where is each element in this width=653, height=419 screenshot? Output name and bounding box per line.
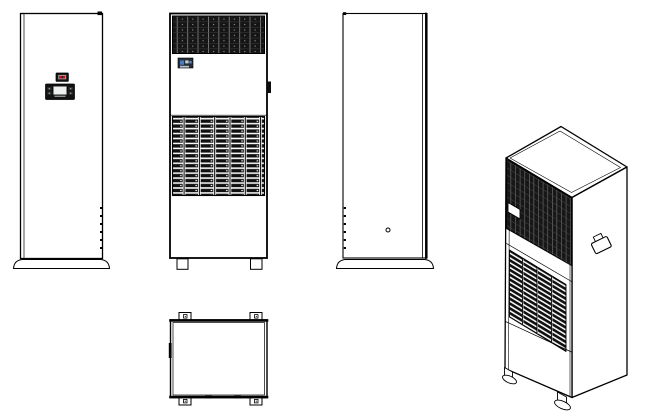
brand-label	[178, 58, 193, 68]
bottom-edge-tick	[205, 396, 212, 399]
label-logo-block	[180, 60, 184, 64]
status-led-dot	[62, 76, 64, 78]
view-isometric	[501, 127, 627, 412]
drawing-sheet	[0, 0, 653, 419]
tab-hole-dot	[185, 316, 186, 317]
view-side	[337, 12, 434, 268]
foot-right	[251, 259, 263, 270]
lcd-screen	[54, 87, 67, 95]
corner-notch	[343, 12, 346, 15]
tab-hole-dot	[185, 401, 186, 402]
plinth-base	[14, 260, 110, 269]
cabinet-body	[343, 14, 427, 259]
view-top	[169, 313, 267, 406]
button-glyph	[49, 93, 50, 94]
right-face	[572, 167, 627, 398]
technical-drawing-canvas	[0, 0, 653, 419]
cabinet-body	[21, 14, 103, 259]
panel-caption-strip	[55, 96, 66, 97]
bottom-edge-tick	[234, 396, 241, 399]
cabinet-outline	[171, 320, 268, 398]
pilot-hole	[386, 228, 390, 232]
button-glyph	[49, 88, 50, 89]
corner-mark	[98, 12, 103, 16]
louver-grille	[173, 117, 265, 196]
left-edge-mark	[169, 343, 172, 358]
button-glyph	[70, 88, 71, 89]
label-text-block	[185, 60, 188, 63]
tab-hole-dot	[256, 401, 257, 402]
tab-hole-dot	[256, 316, 257, 317]
plinth-base	[337, 260, 434, 269]
view-front-grilles	[170, 14, 271, 270]
button-glyph	[70, 93, 71, 94]
label-accent-block	[189, 61, 191, 63]
view-front-control-panel	[14, 12, 110, 269]
top-air-grille	[173, 16, 265, 54]
label-caption-strip	[180, 66, 189, 68]
door-handle	[267, 82, 271, 94]
foot-left	[177, 259, 188, 270]
